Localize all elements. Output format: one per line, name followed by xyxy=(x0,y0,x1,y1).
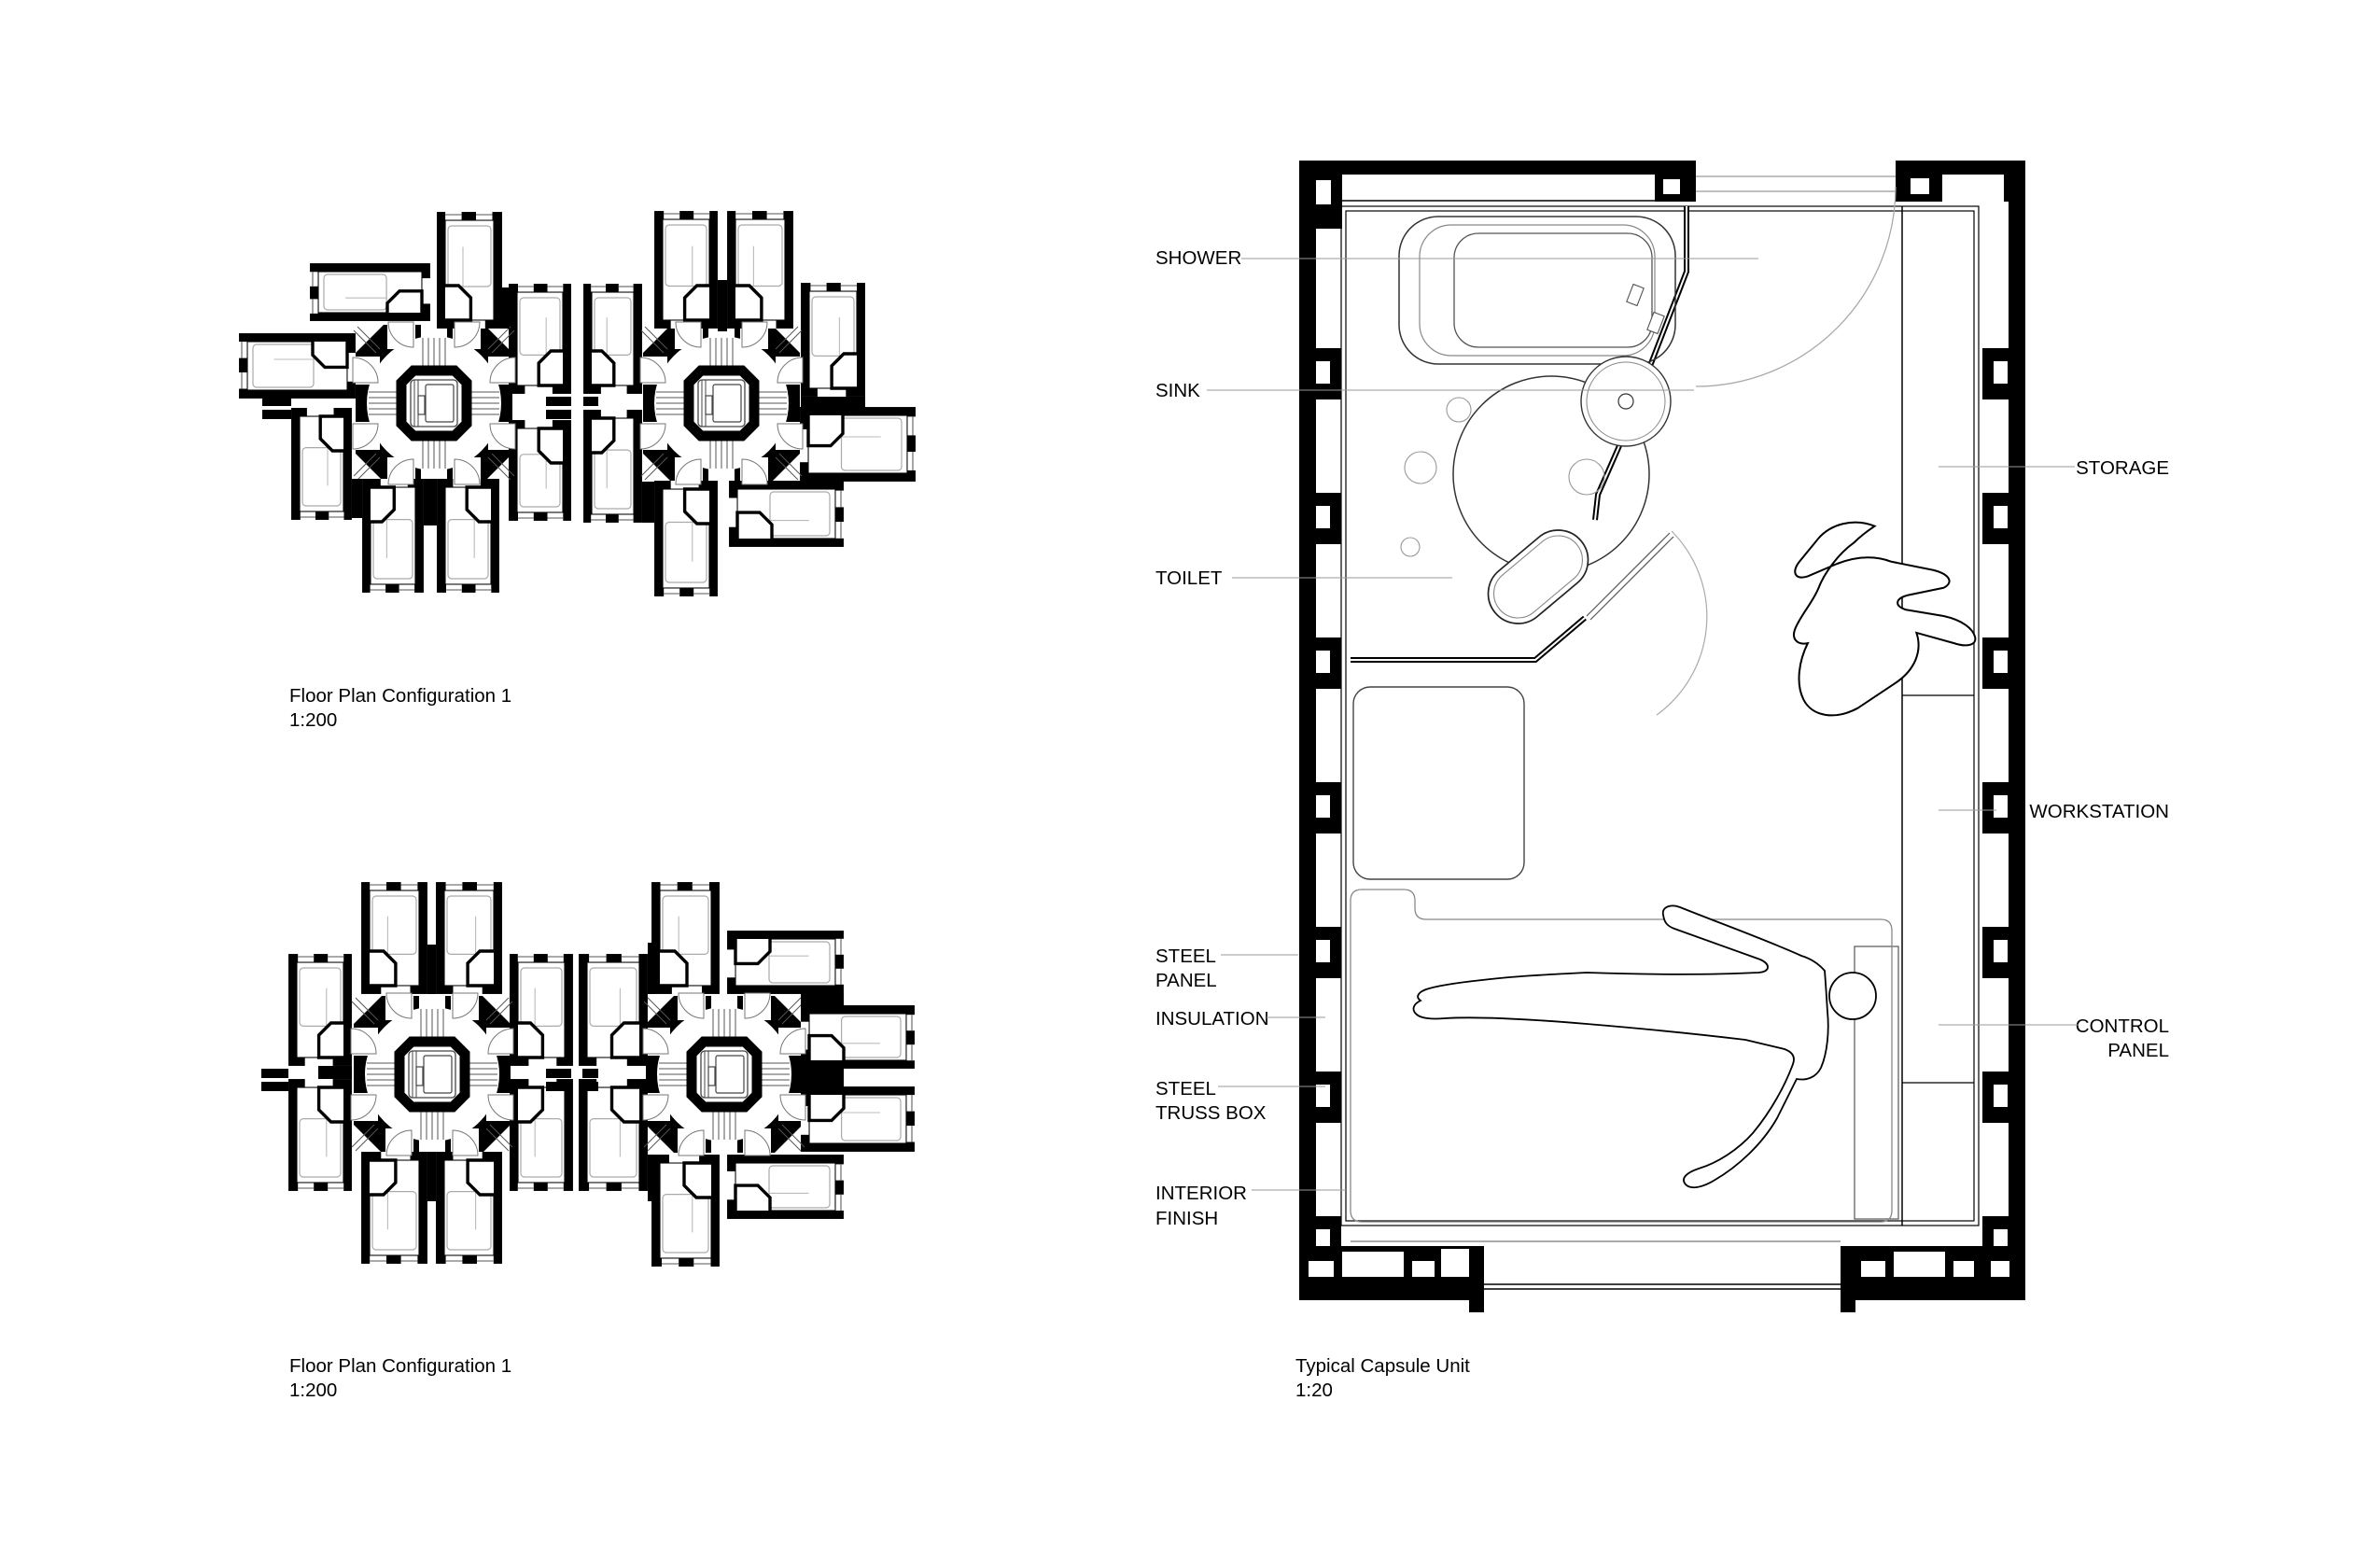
svg-text:Typical Capsule Unit: Typical Capsule Unit xyxy=(1295,1355,1470,1377)
svg-text:PANEL: PANEL xyxy=(1155,970,1217,991)
svg-text:PANEL: PANEL xyxy=(2107,1040,2169,1061)
svg-text:1:200: 1:200 xyxy=(289,1380,337,1401)
svg-text:1:20: 1:20 xyxy=(1295,1380,1333,1401)
svg-text:FINISH: FINISH xyxy=(1155,1208,1218,1229)
svg-text:Floor Plan Configuration 1: Floor Plan Configuration 1 xyxy=(289,685,511,707)
svg-text:TRUSS BOX: TRUSS BOX xyxy=(1155,1102,1267,1124)
svg-text:Floor Plan Configuration 1: Floor Plan Configuration 1 xyxy=(289,1355,511,1377)
svg-text:WORKSTATION: WORKSTATION xyxy=(2029,801,2169,822)
svg-text:1:200: 1:200 xyxy=(289,709,337,731)
svg-text:STEEL: STEEL xyxy=(1155,1078,1216,1100)
svg-text:INTERIOR: INTERIOR xyxy=(1155,1183,1247,1204)
svg-text:INSULATION: INSULATION xyxy=(1155,1008,1269,1030)
svg-text:STEEL: STEEL xyxy=(1155,946,1216,967)
svg-text:STORAGE: STORAGE xyxy=(2076,457,2169,479)
svg-text:SHOWER: SHOWER xyxy=(1155,247,1241,269)
svg-text:TOILET: TOILET xyxy=(1155,567,1223,589)
svg-text:CONTROL: CONTROL xyxy=(2076,1016,2169,1037)
svg-text:SINK: SINK xyxy=(1155,380,1200,401)
